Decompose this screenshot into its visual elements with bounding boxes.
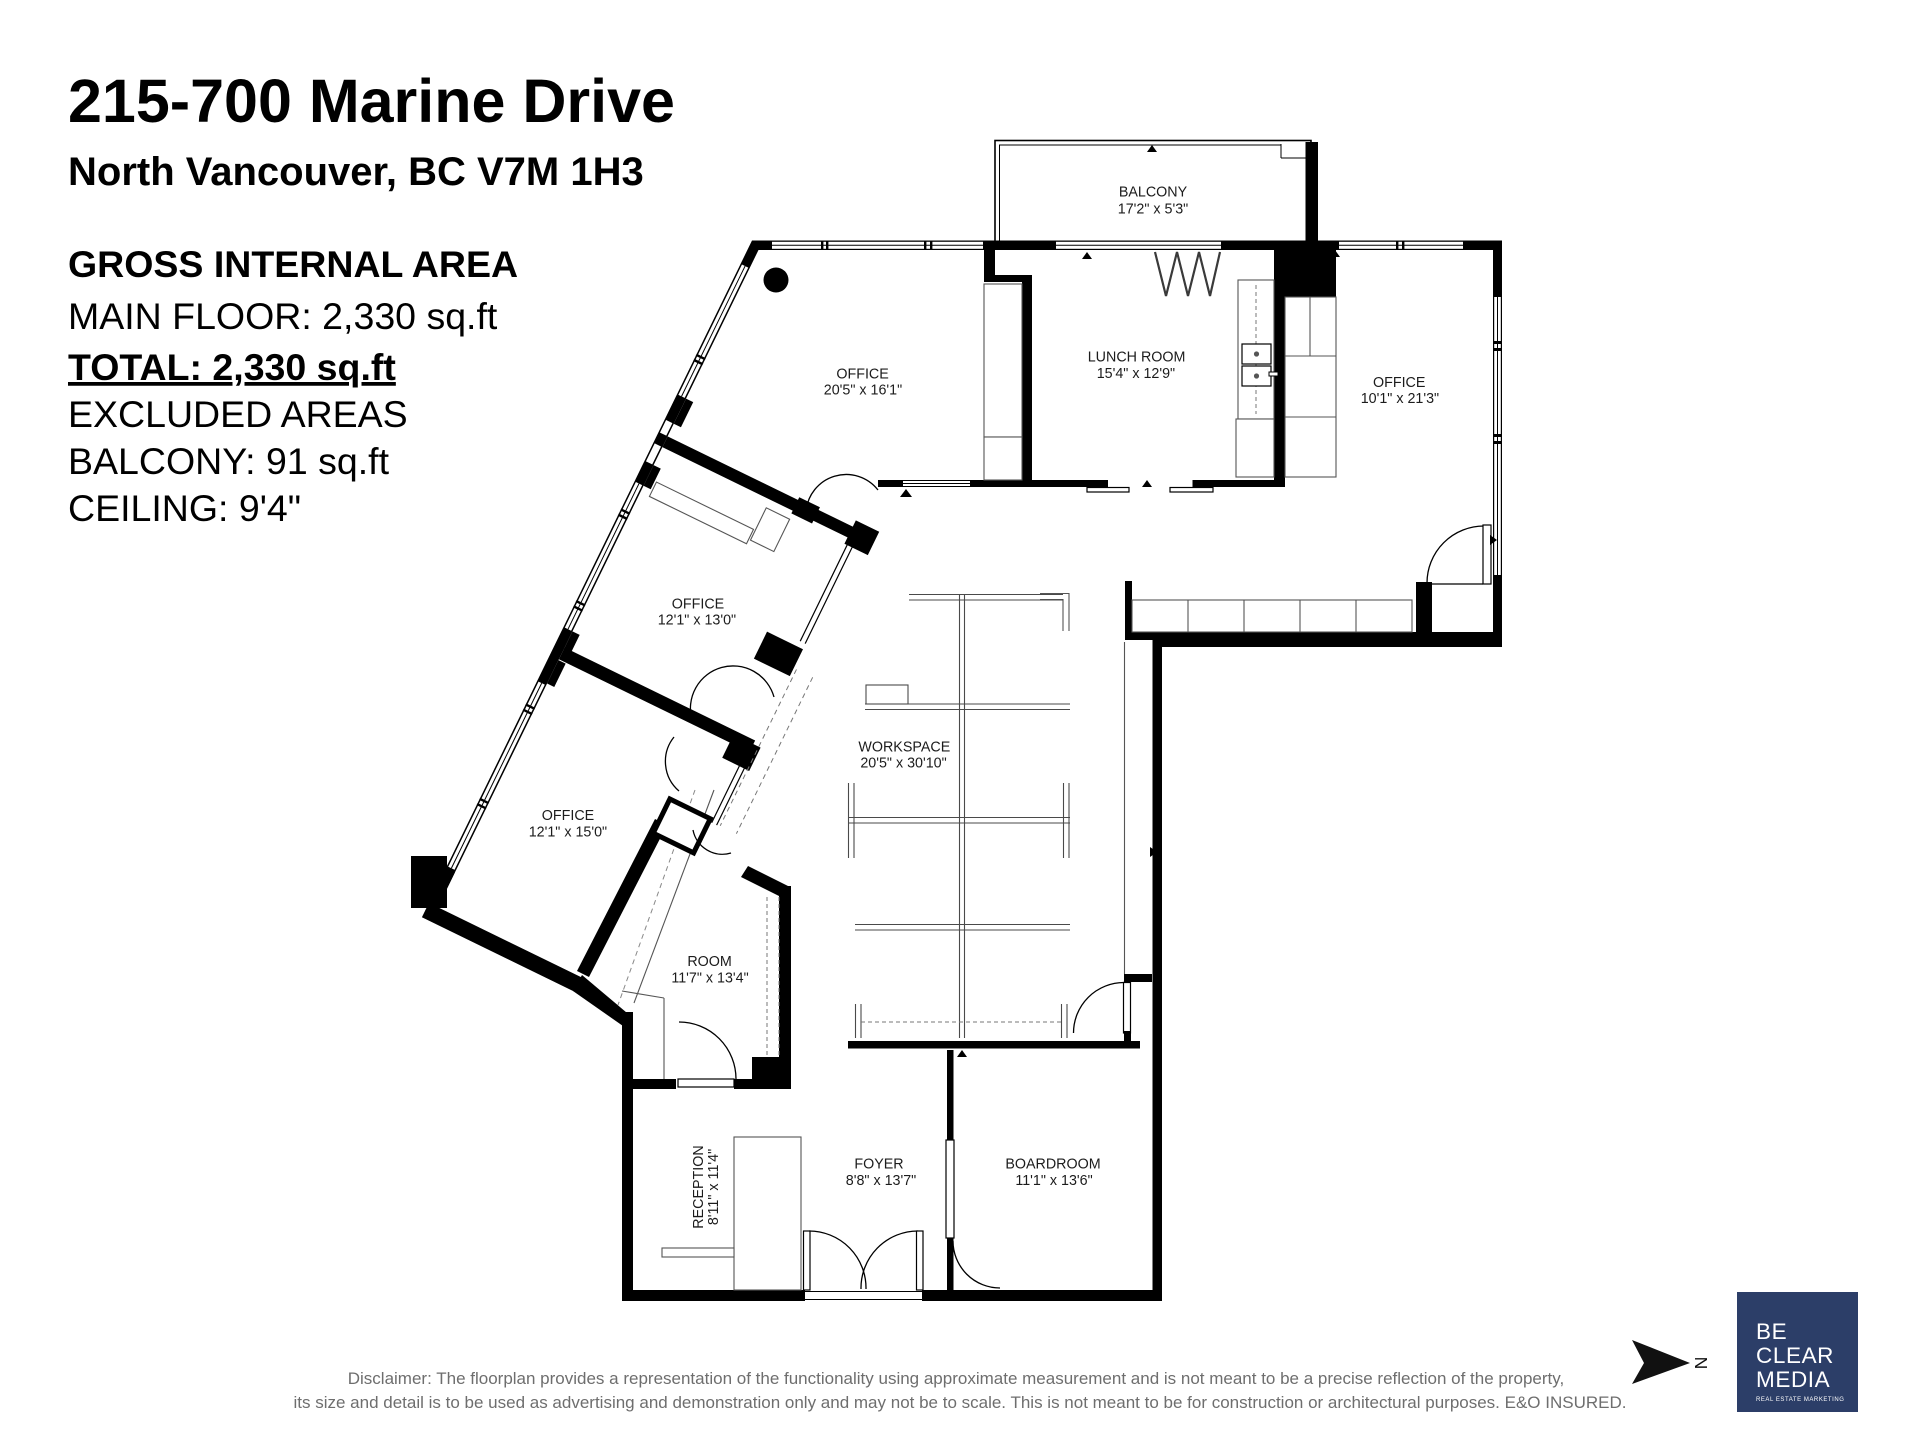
svg-text:Disclaimer: The floorplan prov: Disclaimer: The floorplan provides a rep… xyxy=(348,1369,1564,1388)
svg-text:GROSS INTERNAL AREA: GROSS INTERNAL AREA xyxy=(68,243,518,285)
svg-text:CLEAR: CLEAR xyxy=(1756,1343,1834,1368)
svg-text:FOYER: FOYER xyxy=(854,1157,903,1173)
svg-text:20'5" x 30'10": 20'5" x 30'10" xyxy=(860,756,946,772)
svg-text:RECEPTION: RECEPTION xyxy=(691,1145,707,1228)
svg-text:11'7" x 13'4": 11'7" x 13'4" xyxy=(671,971,748,987)
svg-text:TOTAL: 2,330 sq.ft: TOTAL: 2,330 sq.ft xyxy=(68,346,396,388)
svg-text:BOARDROOM: BOARDROOM xyxy=(1005,1157,1100,1173)
svg-text:CEILING: 9'4": CEILING: 9'4" xyxy=(68,487,301,529)
svg-text:OFFICE: OFFICE xyxy=(836,367,888,383)
svg-text:215-700 Marine Drive: 215-700 Marine Drive xyxy=(68,67,675,135)
svg-text:11'1" x 13'6": 11'1" x 13'6" xyxy=(1015,1173,1092,1189)
svg-text:OFFICE: OFFICE xyxy=(1373,375,1425,391)
svg-text:BE: BE xyxy=(1756,1319,1787,1344)
svg-text:OFFICE: OFFICE xyxy=(672,597,724,613)
svg-text:North Vancouver, BC V7M 1H3: North Vancouver, BC V7M 1H3 xyxy=(68,150,644,194)
svg-text:BALCONY: 91 sq.ft: BALCONY: 91 sq.ft xyxy=(68,440,390,482)
svg-text:15'4" x 12'9": 15'4" x 12'9" xyxy=(1097,366,1175,382)
svg-text:N: N xyxy=(1691,1357,1711,1370)
svg-text:LUNCH ROOM: LUNCH ROOM xyxy=(1088,350,1186,366)
svg-text:20'5" x 16'1": 20'5" x 16'1" xyxy=(824,383,902,399)
svg-text:12'1" x 13'0": 12'1" x 13'0" xyxy=(658,613,736,629)
svg-text:WORKSPACE: WORKSPACE xyxy=(858,739,950,755)
svg-text:OFFICE: OFFICE xyxy=(542,808,594,824)
svg-text:its size and detail is to be u: its size and detail is to be used as adv… xyxy=(294,1393,1627,1412)
svg-text:12'1" x 15'0": 12'1" x 15'0" xyxy=(529,824,607,840)
svg-text:EXCLUDED AREAS: EXCLUDED AREAS xyxy=(68,393,408,435)
svg-text:17'2" x 5'3": 17'2" x 5'3" xyxy=(1118,201,1188,217)
svg-text:REAL ESTATE MARKETING: REAL ESTATE MARKETING xyxy=(1756,1397,1844,1403)
svg-text:10'1" x 21'3": 10'1" x 21'3" xyxy=(1361,391,1439,407)
svg-text:ROOM: ROOM xyxy=(687,954,731,970)
svg-text:MEDIA: MEDIA xyxy=(1756,1367,1830,1392)
svg-text:BALCONY: BALCONY xyxy=(1119,185,1188,201)
svg-text:MAIN FLOOR: 2,330 sq.ft: MAIN FLOOR: 2,330 sq.ft xyxy=(68,295,498,337)
svg-text:8'8" x 13'7": 8'8" x 13'7" xyxy=(846,1173,916,1189)
svg-text:8'11" x 11'4": 8'11" x 11'4" xyxy=(706,1149,722,1225)
